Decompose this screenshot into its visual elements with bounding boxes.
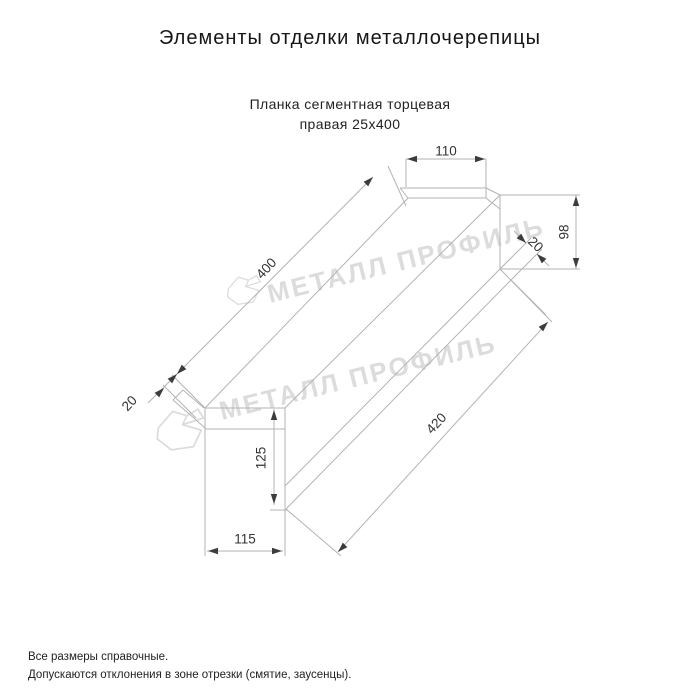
technical-drawing: МЕТАЛЛ ПРОФИЛЬМЕТАЛЛ ПРОФИЛЬ110400209820… xyxy=(0,0,700,700)
watermark-logo-icon xyxy=(157,409,203,450)
dimension-label: 20 xyxy=(119,393,140,414)
dimension-arrow xyxy=(573,258,579,268)
dimension-arrow xyxy=(475,156,485,162)
dimension-arrow xyxy=(272,548,282,554)
dimension-arrow xyxy=(208,548,218,554)
watermark-text: МЕТАЛЛ ПРОФИЛЬ xyxy=(264,211,548,309)
note-line-2: Допускаются отклонения в зоне отрезки (с… xyxy=(28,666,351,684)
dimension-arrow xyxy=(573,196,579,206)
part-line xyxy=(173,390,183,400)
dimension-arrow xyxy=(155,386,167,398)
dimension-label: 115 xyxy=(234,532,256,547)
part-line xyxy=(173,400,195,419)
dimension-arrow xyxy=(271,494,277,504)
dimension-label: 125 xyxy=(254,447,269,470)
dimension-arrow xyxy=(407,156,417,162)
footnotes: Все размеры справочные. Допускаются откл… xyxy=(28,648,351,684)
dimension-label: 98 xyxy=(557,224,572,239)
watermark-logo-icon xyxy=(228,276,261,305)
dimension-label: 110 xyxy=(435,144,457,159)
watermark-text: МЕТАЛЛ ПРОФИЛЬ xyxy=(216,328,500,426)
part-line xyxy=(286,509,341,556)
extension-line xyxy=(388,166,406,206)
note-line-1: Все размеры справочные. xyxy=(28,648,351,666)
part-line xyxy=(195,419,206,429)
part-line xyxy=(511,280,546,315)
part-line xyxy=(486,188,500,195)
part-line xyxy=(183,390,204,408)
dimension-label: 420 xyxy=(423,410,449,437)
